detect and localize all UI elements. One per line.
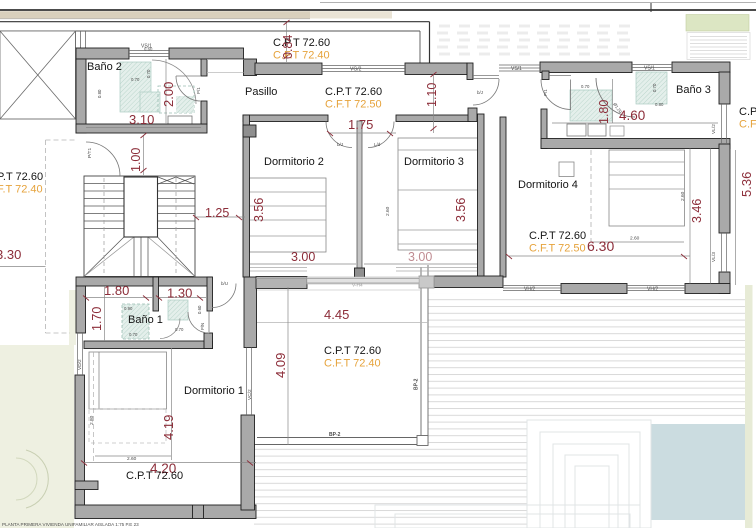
svg-text:BP-2: BP-2 [329,432,341,438]
svg-text:C.F.T 72.50: C.F.T 72.50 [325,99,382,111]
svg-text:0.70: 0.70 [581,84,590,89]
svg-text:0.60: 0.60 [197,305,202,314]
svg-text:4.19: 4.19 [161,415,176,440]
svg-text:0.70: 0.70 [131,77,140,82]
svg-text:b/J: b/J [337,142,343,147]
svg-text:C.P.T 72.60: C.P.T 72.60 [529,230,586,242]
svg-text:1.70: 1.70 [90,307,104,331]
svg-text:C.P.T 72.60: C.P.T 72.60 [126,470,183,482]
svg-text:6.30: 6.30 [587,238,614,254]
svg-text:VL/3: VL/3 [711,252,717,262]
svg-text:C.F.T 72.50: C.F.T 72.50 [739,119,756,131]
svg-text:4.09: 4.09 [273,353,288,378]
svg-text:0.84: 0.84 [281,35,295,59]
svg-text:VG/2: VG/2 [350,67,362,73]
svg-text:VH/2: VH/2 [647,287,658,293]
svg-text:0.80: 0.80 [97,89,102,98]
svg-text:P/1: P/1 [543,89,548,96]
svg-text:VD/2: VD/2 [77,359,83,370]
svg-text:Pasillo: Pasillo [245,86,277,98]
svg-text:P/T1: P/T1 [87,148,93,158]
svg-text:VH/2: VH/2 [524,287,535,293]
svg-text:1.10: 1.10 [425,83,439,107]
svg-text:1.30: 1.30 [167,286,192,301]
svg-text:V-H4: V-H4 [352,283,363,289]
svg-text:1.80: 1.80 [104,283,129,298]
svg-text:2.80: 2.80 [89,415,95,425]
svg-text:0.70: 0.70 [652,83,657,92]
svg-text:0.70: 0.70 [146,69,151,78]
svg-text:PLANTA PRIMERA VIVIENDA UNIFAM: PLANTA PRIMERA VIVIENDA UNIFAMILIAR AISL… [2,522,139,527]
svg-text:2.60: 2.60 [630,236,640,242]
svg-text:Dormitorio 1: Dormitorio 1 [184,385,244,397]
svg-text:0.60: 0.60 [144,47,153,52]
svg-text:3.00: 3.00 [291,250,315,264]
svg-text:5.36: 5.36 [739,172,754,197]
svg-text:2.00: 2.00 [161,82,176,107]
svg-text:VC/2: VC/2 [247,389,253,400]
svg-text:P/N: P/N [200,323,205,330]
svg-text:C.F.T 72.50: C.F.T 72.50 [529,243,586,255]
svg-text:3.00: 3.00 [408,250,432,264]
svg-text:Baño 1: Baño 1 [128,314,163,326]
svg-text:4.45: 4.45 [324,307,349,322]
svg-text:1.80: 1.80 [597,100,611,124]
svg-text:3.56: 3.56 [252,198,266,222]
svg-text:2.60: 2.60 [385,206,391,216]
svg-text:1.25: 1.25 [205,206,229,220]
svg-text:b/J: b/J [477,90,483,95]
svg-text:3.56: 3.56 [454,198,468,222]
svg-text:C.F.T 72.40: C.F.T 72.40 [0,184,43,196]
svg-text:C.F.T 72.40: C.F.T 72.40 [324,358,381,370]
svg-text:C.P.T 72.60: C.P.T 72.60 [0,171,43,183]
svg-text:0.90: 0.90 [124,306,133,311]
svg-text:0.80: 0.80 [655,102,664,107]
svg-text:L/d: L/d [374,142,381,147]
svg-text:1.75: 1.75 [348,117,373,132]
svg-text:Dormitorio 2: Dormitorio 2 [264,156,324,168]
svg-text:Baño 3: Baño 3 [676,84,711,96]
svg-text:2.60: 2.60 [127,456,137,462]
svg-text:C.P.T 72.60: C.P.T 72.60 [325,86,382,98]
svg-text:3.46: 3.46 [690,199,704,223]
svg-text:C.P.T 72.60: C.P.T 72.60 [739,106,756,118]
svg-text:BP-2: BP-2 [414,378,420,390]
svg-text:Dormitorio 3: Dormitorio 3 [404,156,464,168]
svg-text:3.10: 3.10 [129,112,154,127]
svg-text:VL/2: VL/2 [711,124,717,134]
svg-text:Baño 2: Baño 2 [87,61,122,73]
svg-text:3.30: 3.30 [0,247,21,262]
svg-text:P/1: P/1 [196,87,201,94]
svg-text:VS/1: VS/1 [511,66,522,72]
svg-text:b/U: b/U [221,281,228,286]
svg-text:1.00: 1.00 [129,148,143,172]
svg-text:0.70: 0.70 [175,327,184,332]
svg-text:2.60: 2.60 [680,191,686,201]
svg-text:C.P.T 72.60: C.P.T 72.60 [324,345,381,357]
svg-text:0.70: 0.70 [129,332,138,337]
svg-text:Dormitorio 4: Dormitorio 4 [518,179,578,191]
svg-text:VS/1: VS/1 [644,66,655,72]
